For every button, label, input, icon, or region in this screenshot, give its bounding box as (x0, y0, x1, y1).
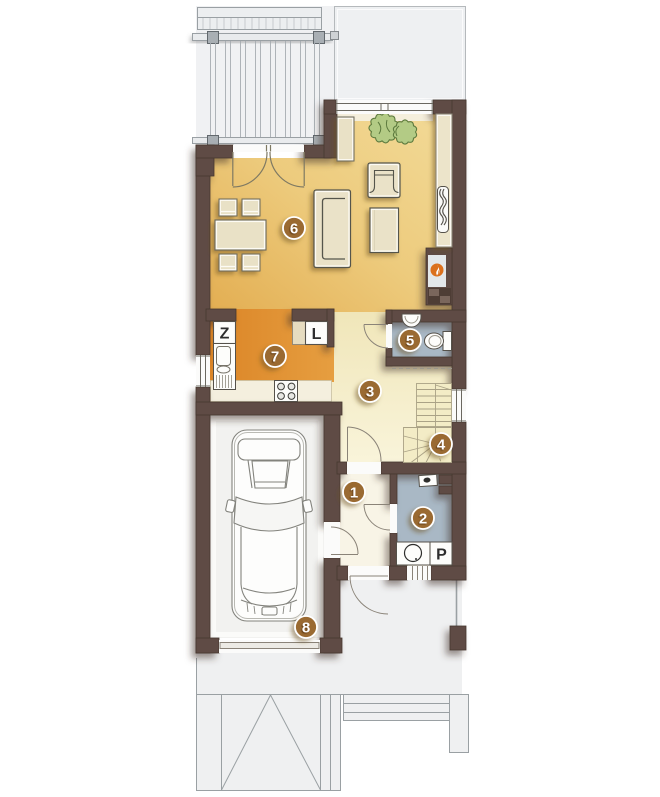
svg-text:Z: Z (220, 326, 230, 343)
svg-text:7: 7 (271, 349, 279, 366)
svg-text:1: 1 (350, 485, 358, 502)
svg-text:L: L (312, 326, 322, 343)
svg-text:P: P (436, 547, 447, 564)
svg-text:4: 4 (437, 437, 446, 454)
svg-text:6: 6 (290, 221, 298, 238)
svg-text:8: 8 (302, 620, 310, 637)
svg-text:3: 3 (366, 384, 374, 401)
svg-text:5: 5 (406, 333, 414, 350)
svg-text:2: 2 (419, 511, 427, 528)
